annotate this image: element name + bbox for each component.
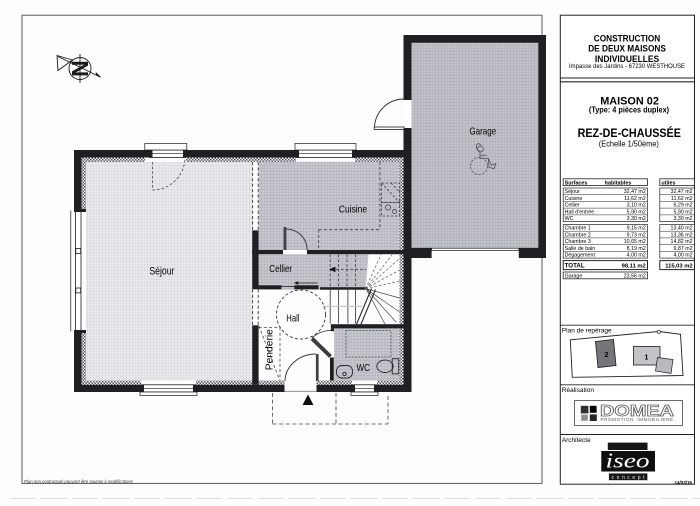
svg-text:11,62 m2: 11,62 m2: [624, 196, 646, 202]
svg-text:Plan de repérage: Plan de repérage: [562, 328, 612, 335]
svg-text:(Echelle 1/50ème): (Echelle 1/50ème): [599, 140, 659, 149]
svg-text:Réalisation: Réalisation: [562, 387, 595, 394]
svg-text:TOTAL: TOTAL: [565, 263, 585, 270]
svg-text:Cuisine: Cuisine: [565, 196, 583, 202]
svg-text:(Type: 4 pièces duplex): (Type: 4 pièces duplex): [589, 106, 670, 115]
svg-text:Plan non contractuel pouvant ê: Plan non contractuel pouvant être soumis…: [24, 479, 134, 484]
svg-text:6,29 m2: 6,29 m2: [673, 203, 692, 209]
svg-text:3,30 m2: 3,30 m2: [673, 216, 692, 222]
svg-text:Hall d'entrée: Hall d'entrée: [565, 209, 595, 215]
svg-text:Séjour: Séjour: [565, 189, 581, 195]
svg-text:Penderie: Penderie: [265, 329, 276, 371]
svg-text:concept: concept: [612, 475, 646, 481]
svg-text:Chambre 1: Chambre 1: [565, 226, 591, 232]
svg-text:WC: WC: [565, 216, 574, 222]
svg-text:10,65 m2: 10,65 m2: [624, 239, 646, 245]
svg-text:N: N: [67, 60, 93, 77]
svg-text:5,90 m2: 5,90 m2: [627, 209, 646, 215]
svg-text:WC: WC: [357, 363, 371, 374]
svg-text:Architecte: Architecte: [562, 437, 591, 444]
svg-text:14,82 m2: 14,82 m2: [671, 239, 693, 245]
svg-text:11,62 m2: 11,62 m2: [671, 196, 693, 202]
svg-text:8,19 m2: 8,19 m2: [627, 246, 646, 252]
svg-text:PROMOTION IMMOBILIÈRE: PROMOTION IMMOBILIÈRE: [601, 416, 674, 422]
svg-text:115,03 m2: 115,03 m2: [665, 264, 692, 270]
svg-text:32,47 m2: 32,47 m2: [624, 189, 646, 195]
svg-text:DE DEUX MAISONS: DE DEUX MAISONS: [588, 44, 666, 54]
svg-text:habitables: habitables: [605, 180, 632, 186]
svg-text:13,40 m2: 13,40 m2: [671, 226, 693, 232]
svg-text:Garage: Garage: [469, 127, 496, 138]
svg-text:4,00 m2: 4,00 m2: [627, 253, 646, 259]
svg-text:Hall: Hall: [286, 313, 299, 324]
svg-text:32,47 m2: 32,47 m2: [671, 189, 693, 195]
svg-text:4,00 m2: 4,00 m2: [673, 253, 692, 259]
svg-text:9,87 m2: 9,87 m2: [673, 246, 692, 252]
svg-text:98,11 m2: 98,11 m2: [622, 264, 646, 270]
svg-text:Garage: Garage: [565, 273, 583, 279]
svg-text:Cellier: Cellier: [565, 203, 580, 209]
svg-text:Salle de bain: Salle de bain: [565, 246, 596, 252]
svg-text:Cellier: Cellier: [269, 264, 292, 275]
svg-text:utiles: utiles: [661, 180, 675, 186]
svg-text:3,30 m2: 3,30 m2: [627, 216, 646, 222]
svg-text:Dégagement: Dégagement: [565, 253, 596, 259]
svg-text:1: 1: [645, 355, 649, 362]
svg-text:3,10 m2: 3,10 m2: [627, 203, 646, 209]
svg-text:Cuisine: Cuisine: [339, 204, 367, 215]
svg-text:23,56 m2: 23,56 m2: [624, 273, 646, 279]
svg-text:Surfaces: Surfaces: [565, 180, 588, 186]
svg-text:Impasse des Jardins - 67230 WE: Impasse des Jardins - 67230 WESTHOUSE: [569, 64, 685, 70]
svg-text:Chambre 3: Chambre 3: [565, 239, 591, 245]
svg-text:CONSTRUCTION: CONSTRUCTION: [594, 33, 660, 43]
svg-text:9,73 m2: 9,73 m2: [627, 232, 646, 238]
svg-text:5,90 m2: 5,90 m2: [673, 209, 692, 215]
svg-text:14/03/16: 14/03/16: [674, 480, 692, 485]
svg-text:13,36 m2: 13,36 m2: [671, 232, 693, 238]
svg-text:iseo: iseo: [606, 449, 650, 473]
svg-text:INDIVIDUELLES: INDIVIDUELLES: [595, 54, 659, 64]
svg-text:Chambre 2: Chambre 2: [565, 232, 591, 238]
svg-text:2: 2: [605, 352, 609, 359]
svg-text:REZ-DE-CHAUSSÉE: REZ-DE-CHAUSSÉE: [578, 125, 681, 140]
svg-text:9,15 m2: 9,15 m2: [627, 226, 646, 232]
svg-text:Séjour: Séjour: [149, 266, 174, 278]
